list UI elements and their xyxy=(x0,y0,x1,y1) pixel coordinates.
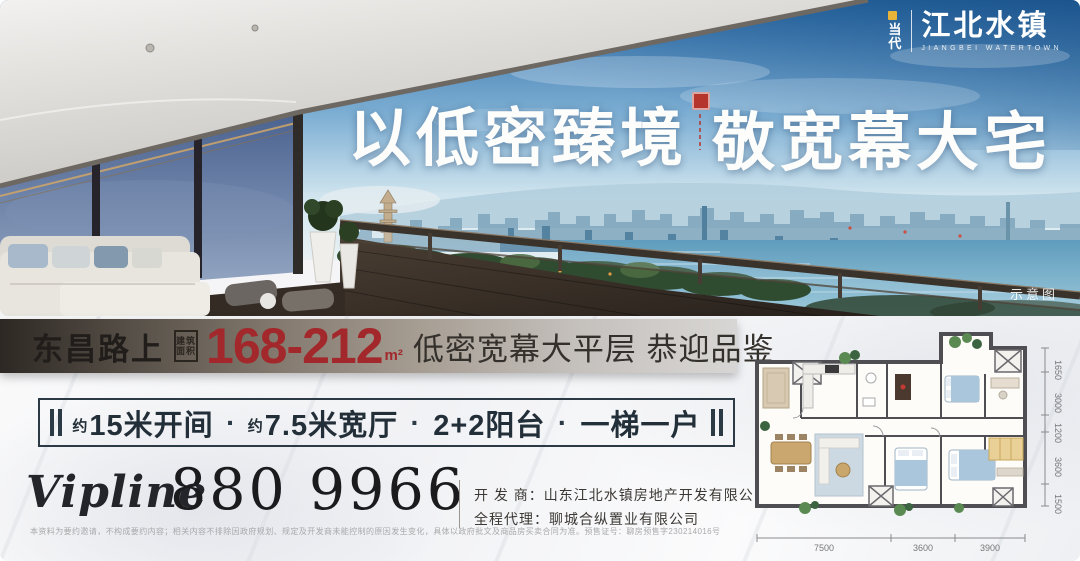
floor-plan: 7500 3600 3900 1650 3000 1200 3600 1500 xyxy=(745,318,1080,561)
feature-item: 2+2阳台 xyxy=(432,402,545,444)
brand-logo: 当 代 江北水镇 JIANGBEI WATERTOWN xyxy=(888,10,1062,52)
agent-name: 聊城合纵置业有限公司 xyxy=(549,511,699,527)
dim-label: 7500 xyxy=(814,543,834,553)
dim-label: 3000 xyxy=(1053,393,1063,413)
headline-right: 敬宽幕大宅 xyxy=(712,92,1052,183)
disclaimer-text: 本资料为要约邀请，不构成要约内容；相关内容不排除因政府规划、规定及开发商未能控制… xyxy=(30,526,738,537)
phone-number: 880 9966 xyxy=(170,457,466,523)
company-info: 开 发 商：山东江北水镇房地产开发有限公司 全程代理：聊城合纵置业有限公司 xyxy=(474,483,769,531)
headline-left: 以低密臻境 xyxy=(348,88,688,179)
hero-photo: 当 代 江北水镇 JIANGBEI WATERTOWN 以低密臻境 敬宽幕大宅 … xyxy=(0,0,1080,316)
developer-name: 山东江北水镇房地产开发有限公司 xyxy=(544,487,769,503)
logo-brand-block: 当 代 xyxy=(888,11,902,51)
location-text: 东昌路上 xyxy=(32,324,164,369)
area-stamp: 建筑 面积 xyxy=(174,330,198,362)
dim-label: 1200 xyxy=(1053,423,1063,443)
area-unit: m² xyxy=(385,347,403,364)
feature-item: 约15米开间 xyxy=(72,402,213,444)
logo-divider xyxy=(911,10,912,52)
photo-disclaimer-tag: 示意图 xyxy=(1010,284,1058,303)
developer-line: 开 发 商：山东江北水镇房地产开发有限公司 xyxy=(474,483,769,507)
sofa xyxy=(0,236,210,316)
vertical-divider xyxy=(459,480,460,528)
area-range: 168-212 xyxy=(206,319,383,373)
logo-subtitle: JIANGBEI WATERTOWN xyxy=(921,45,1062,52)
info-section: 东昌路上 建筑 面积 168-212 m² 低密宽幕大平层 恭迎品鉴 约15米开… xyxy=(0,316,1080,561)
feature-item: 约7.5米宽厅 xyxy=(248,402,398,444)
dim-label: 3900 xyxy=(980,543,1000,553)
info-bar: 东昌路上 建筑 面积 168-212 m² 低密宽幕大平层 恭迎品鉴 xyxy=(0,319,737,373)
separator-dot: · xyxy=(411,407,420,439)
feature-strip: 约15米开间 · 约7.5米宽厅 · 2+2阳台 · 一梯一户 xyxy=(38,398,735,447)
agent-label: 全程代理： xyxy=(474,511,549,527)
ad-banner: 当 代 江北水镇 JIANGBEI WATERTOWN 以低密臻境 敬宽幕大宅 … xyxy=(0,0,1080,561)
feature-item: 一梯一户 xyxy=(580,402,701,444)
area-stamp-line1: 建筑 xyxy=(176,336,196,346)
separator-dot: · xyxy=(558,407,567,439)
logo-name-block: 江北水镇 JIANGBEI WATERTOWN xyxy=(921,10,1062,52)
strip-ornament-right xyxy=(711,409,723,436)
tagline: 低密宽幕大平层 恭迎品鉴 xyxy=(413,324,775,369)
seal-inscription xyxy=(699,114,701,150)
dim-label: 3600 xyxy=(913,543,933,553)
dim-label: 3600 xyxy=(1053,457,1063,477)
logo-name: 江北水镇 xyxy=(921,10,1062,42)
dim-label: 1650 xyxy=(1053,360,1063,380)
strip-ornament-left xyxy=(50,409,62,436)
seal-stamp-icon xyxy=(692,92,710,110)
separator-dot: · xyxy=(226,407,235,439)
developer-label: 开 发 商： xyxy=(474,487,544,503)
dim-label: 1500 xyxy=(1053,494,1063,514)
logo-mark-icon xyxy=(888,11,897,20)
logo-brand-text: 当 代 xyxy=(888,23,902,51)
area-stamp-line2: 面积 xyxy=(176,346,196,356)
